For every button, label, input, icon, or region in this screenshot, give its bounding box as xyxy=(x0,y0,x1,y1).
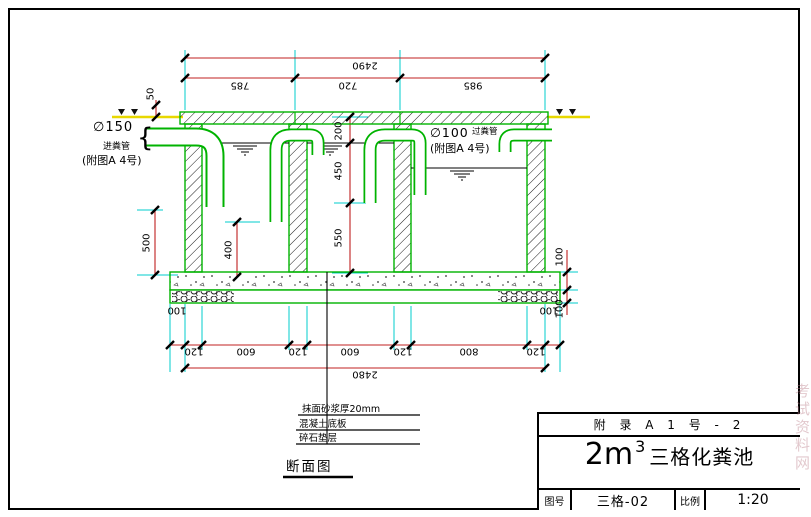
title-block-footer: 图号 三格-02 比例 1:20 xyxy=(539,490,800,510)
tank-volume: 2m xyxy=(585,437,633,472)
watermark-text: 考试资料网 xyxy=(792,383,811,473)
drawing-sheet: 2490 785 720 985 120 600 120 600 120 800… xyxy=(0,0,811,517)
scale-label: 比例 xyxy=(676,490,706,510)
sheet-reference: 附 录 A 1 号 - 2 xyxy=(539,414,800,437)
drawing-title: 2m3三格化粪池 xyxy=(539,437,800,490)
tank-volume-exponent: 3 xyxy=(635,437,645,456)
figure-number-value: 三格-02 xyxy=(572,490,676,510)
tank-title: 三格化粪池 xyxy=(649,441,754,470)
figure-number-label: 图号 xyxy=(539,490,572,510)
title-block: 附 录 A 1 号 - 2 2m3三格化粪池 图号 三格-02 比例 1:20 xyxy=(537,412,800,510)
scale-value: 1:20 xyxy=(706,490,800,510)
